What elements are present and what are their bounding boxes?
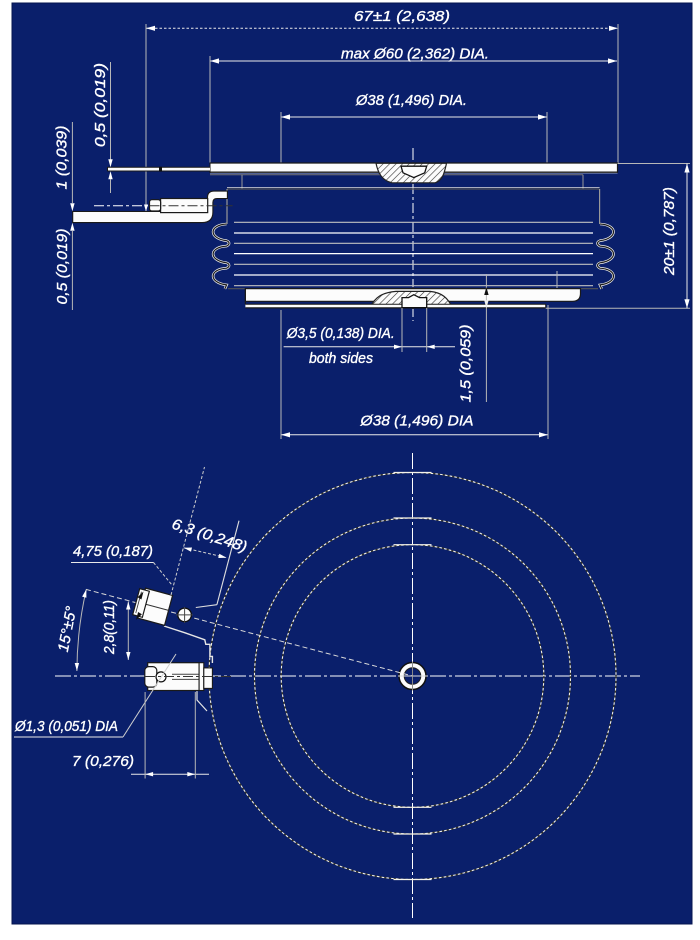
svg-text:Ø3,5 (0,138) DIA.: Ø3,5 (0,138) DIA. [286,325,395,342]
svg-text:4,75 (0,187): 4,75 (0,187) [73,543,153,560]
svg-text:2,8(0,11): 2,8(0,11) [101,600,118,655]
svg-text:Ø38 (1,496) DIA: Ø38 (1,496) DIA [359,413,473,430]
svg-text:Ø38 (1,496) DIA.: Ø38 (1,496) DIA. [355,92,467,109]
svg-text:0,5 (0,019): 0,5 (0,019) [92,63,109,147]
svg-text:20±1 (0,787): 20±1 (0,787) [661,187,678,276]
svg-text:1,5 (0,059): 1,5 (0,059) [458,324,475,402]
svg-text:67±1 (2,638): 67±1 (2,638) [354,8,450,25]
svg-text:7 (0,276): 7 (0,276) [72,753,134,770]
svg-text:0,5 (0,019): 0,5 (0,019) [54,228,71,304]
svg-text:max Ø60 (2,362) DIA.: max Ø60 (2,362) DIA. [341,46,489,63]
svg-text:Ø1,3 (0,051) DIA: Ø1,3 (0,051) DIA [14,718,118,735]
svg-text:1 (0,039): 1 (0,039) [54,126,71,190]
svg-text:both sides: both sides [309,350,373,367]
